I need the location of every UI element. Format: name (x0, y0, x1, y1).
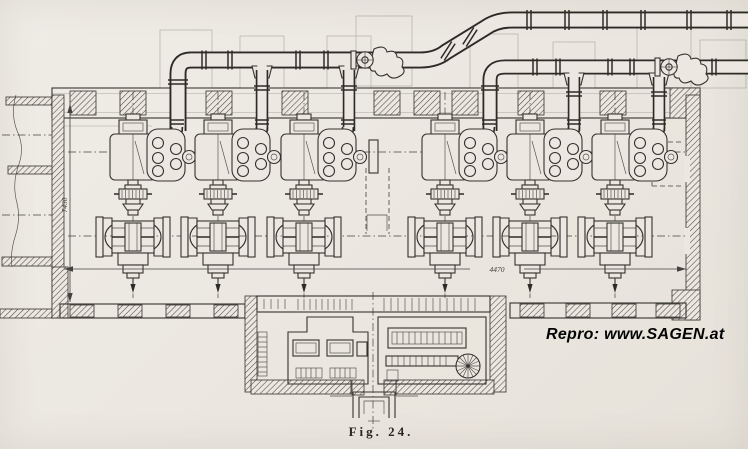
hall-width-dimension: 7430 (60, 197, 69, 212)
intake-bays (0, 95, 58, 318)
pump-units (96, 114, 678, 293)
hall-length-dimension: 4470 (490, 265, 505, 274)
scanned-plate: 4470 7430 (0, 0, 748, 449)
figure-caption: Fig. 24. (336, 424, 426, 440)
plan-drawing: 4470 7430 (0, 0, 748, 449)
entrance-shaft (353, 392, 395, 421)
gallery-ribs (264, 298, 475, 311)
center-aisle (366, 140, 389, 234)
watermark-text: Repro: www.SAGEN.at (546, 326, 724, 344)
spiral-stair (456, 354, 480, 378)
annex-building (245, 296, 506, 421)
